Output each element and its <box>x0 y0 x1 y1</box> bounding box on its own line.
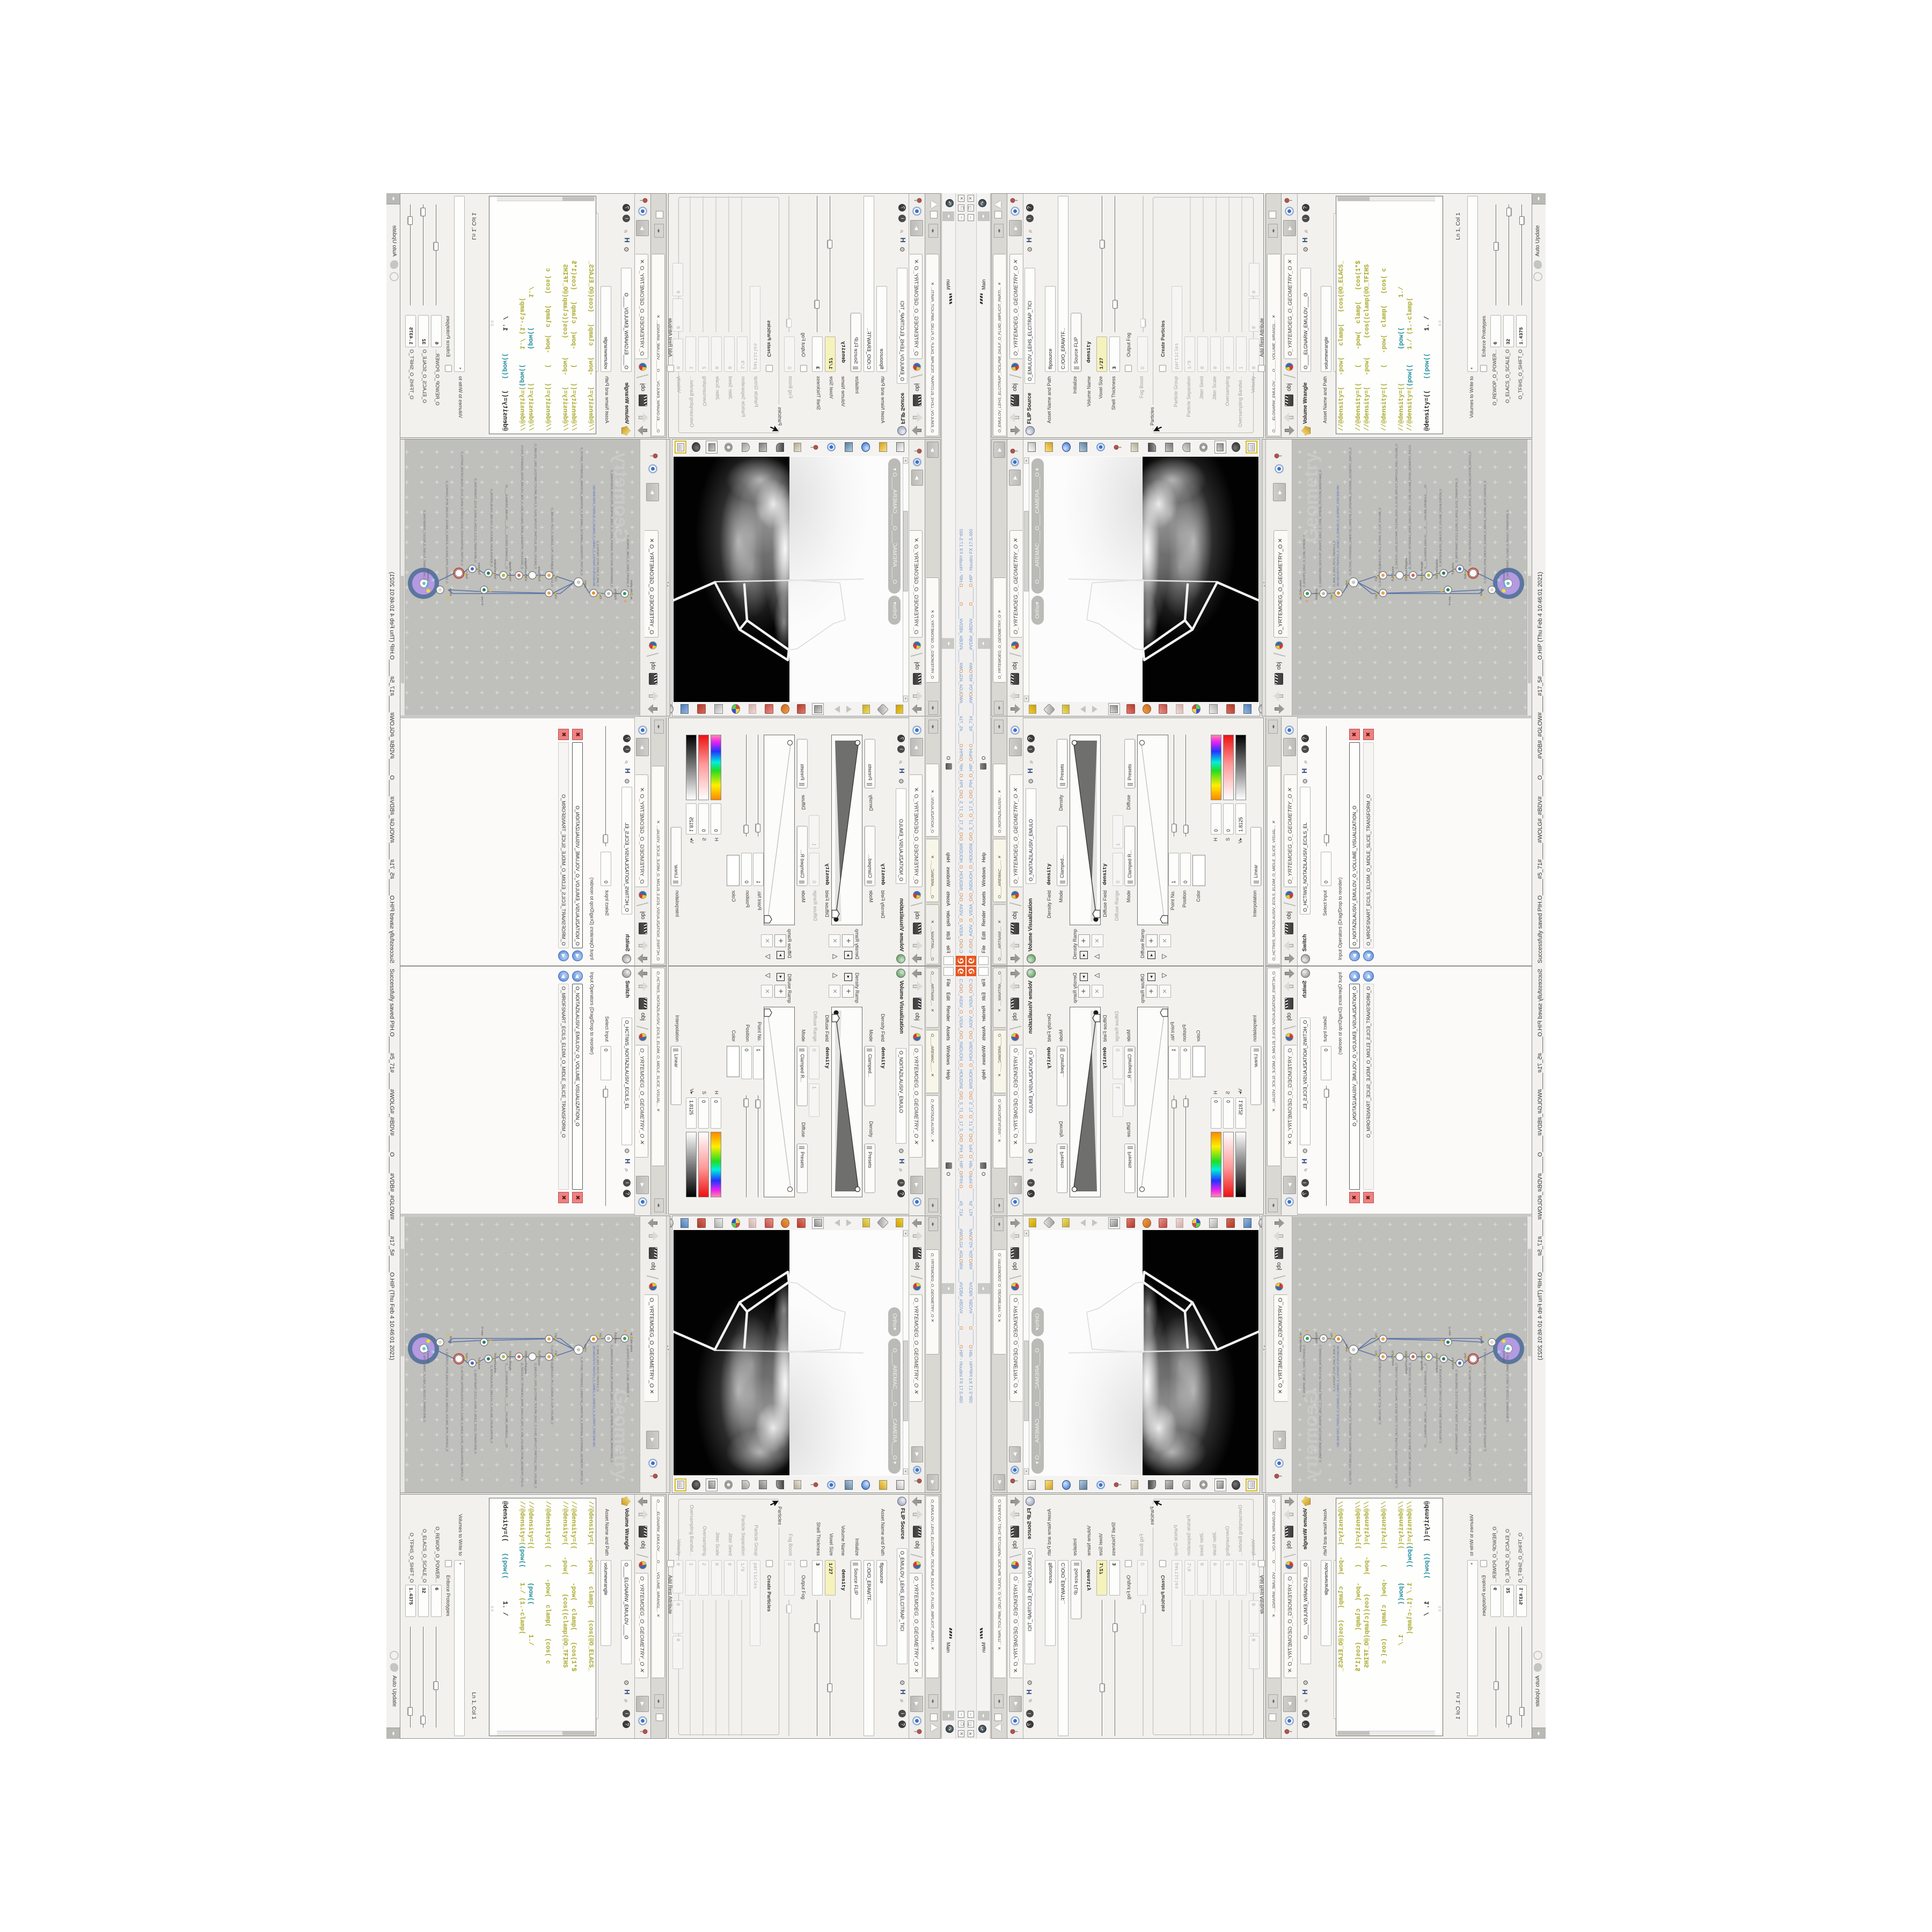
svg-text:Volume: Volume <box>480 1327 484 1336</box>
svg-text:O_MROFSNART_TLUSER_O_RESULT_TR: O_MROFSNART_TLUSER_O_RESULT_TRANSFORM_O <box>1506 510 1510 580</box>
svg-text:O_HCTIWS_NOITAZILAUSIV_ECILS_E: O_HCTIWS_NOITAZILAUSIV_ECILS_ELDIM_O_MID… <box>460 451 463 566</box>
svg-text:Switch: Switch <box>1345 1344 1349 1352</box>
svg-text:PolyWire: PolyWire <box>613 1333 617 1343</box>
svg-text:Volume Wrangle: Volume Wrangle <box>508 1351 511 1371</box>
svg-text:Volume Wrangle: Volume Wrangle <box>1421 561 1424 581</box>
svg-text:O_EMARFERIW_NOGYLOP_EREHPS_EBU: O_EMARFERIW_NOGYLOP_EREHPS_EBUC_O_CUBE_S… <box>610 470 613 587</box>
svg-text:Clip: Clip <box>1375 594 1378 599</box>
svg-text:VolumeVisualiza: VolumeVisualiza <box>1436 1353 1439 1373</box>
svg-text:ae_CubeSphere: ae_CubeSphere <box>1299 580 1302 599</box>
svg-text:VDB from Polygons: VDB from Polygons <box>1405 1351 1408 1374</box>
svg-text:Switch: Switch <box>465 1353 468 1361</box>
svg-text:Volume Wrangle: Volume Wrangle <box>508 561 511 581</box>
svg-text:VolumeVisualiza: VolumeVisualiza <box>1436 559 1439 579</box>
svg-text:O_SNOGILOP_YRTEMOEG_MORF_EMULO: O_SNOGILOP_YRTEMOEG_MORF_EMULOV_BDV_O_VD… <box>520 445 523 569</box>
svg-text:O_EMULOV_LEHS_ELCITRAP_TICILPM: O_EMULOV_LEHS_ELCITRAP_TICILPMI_DIULF_O_… <box>533 444 537 569</box>
svg-text:Geometry: Geometry <box>610 1389 632 1480</box>
svg-text:File: File <box>598 595 602 599</box>
svg-text:O_MROFSNART_TLUSER_O_RESULT_TR: O_MROFSNART_TLUSER_O_RESULT_TRANSFORM_O <box>1506 1352 1510 1422</box>
svg-text:JBO.MD3.PETS.TREPOLS_O_SDNEG_O: JBO.MD3.PETS.TREPOLS_O_SDNEG_O_GENUS3_O_… <box>1337 485 1340 587</box>
svg-text:O_EMARFERIW_NOGYLOP_EREHPS_EBU: O_EMARFERIW_NOGYLOP_EREHPS_EBUC_O_CUBE_S… <box>610 1345 613 1462</box>
svg-text:Clip: Clip <box>554 594 557 599</box>
svg-text:FLIP Source: FLIP Source <box>537 1351 540 1366</box>
svg-text:O_ECAFRUS_HTIW_EMULOV_EGREM_O_: O_ECAFRUS_HTIW_EMULOV_EGREM_O_MERGE_VOLU… <box>1484 1349 1487 1452</box>
svg-text:O_NOITAZILAUSIV_EMULOV_O_VOLUM: O_NOITAZILAUSIV_EMULOV_O_VOLUME_VISUALIZ… <box>1439 1365 1443 1443</box>
svg-text:O_NOITAZILAUSIV_EMULOV_O_VOLUM: O_NOITAZILAUSIV_EMULOV_O_VOLUME_VISUALIZ… <box>489 489 493 567</box>
svg-text:ae_CubeSphere: ae_CubeSphere <box>1299 1333 1302 1352</box>
svg-text:ae_CubeSphere: ae_CubeSphere <box>630 580 633 599</box>
svg-text:Merge: Merge <box>449 588 452 596</box>
svg-text:Clip: Clip <box>554 1351 557 1356</box>
svg-text:Transform: Transform <box>426 569 429 581</box>
svg-text:O_MROFSNART_ECILS_ELDIM_O_MIDL: O_MROFSNART_ECILS_ELDIM_O_MIDLE_SLICE_TR… <box>473 478 477 562</box>
svg-text:O_MROFSNART_ECILS_ELDIM_O_MIDL: O_MROFSNART_ECILS_ELDIM_O_MIDLE_SLICE_TR… <box>1455 1370 1459 1454</box>
svg-text:Volume Wrangle: Volume Wrangle <box>1421 1351 1424 1371</box>
svg-text:Merge: Merge <box>1480 1336 1483 1344</box>
svg-text:Switch: Switch <box>465 571 468 579</box>
svg-text:Clip: Clip <box>554 1333 557 1338</box>
svg-text:O_HCTIWS_NOITAZILAUSIV_ECILS_E: O_HCTIWS_NOITAZILAUSIV_ECILS_ELDIM_O_MID… <box>1469 451 1472 566</box>
svg-text:O_SNOGILOP_YRTEMOEG_MORF_EMULO: O_SNOGILOP_YRTEMOEG_MORF_EMULOV_BDV_O_VD… <box>520 1363 523 1487</box>
svg-text:O_EREHPS_EBUC_O_CUBE_SPHERE_O: O_EREHPS_EBUC_O_CUBE_SPHERE_O <box>626 535 629 587</box>
svg-text:O_HCTIWS_YRTEMOEG_LANRETXE_LAN: O_HCTIWS_YRTEMOEG_LANRETXE_LANRETNI_O_IN… <box>580 448 583 575</box>
svg-text:Transform: Transform <box>477 562 480 575</box>
svg-text:PolyWire: PolyWire <box>1315 589 1319 599</box>
svg-text:Clip: Clip <box>1375 1351 1378 1356</box>
svg-text:O_NAB_O_MD3_PETS_TREPOLS_O: O_NAB_O_MD3_PETS_TREPOLS_O <box>596 540 599 587</box>
svg-text:O_EMARFERIW_NOGYLOP_EREHPS_EBU: O_EMARFERIW_NOGYLOP_EREHPS_EBUC_O_CUBE_S… <box>1319 1345 1322 1462</box>
svg-text:O_SNOGILOP_YRTEMOEG_MORF_EMULO: O_SNOGILOP_YRTEMOEG_MORF_EMULOV_BDV_O_VD… <box>1409 445 1412 569</box>
svg-text:O_MROFSNART_ECILS_ELDIM_O_MIDL: O_MROFSNART_ECILS_ELDIM_O_MIDLE_SLICE_TR… <box>1455 478 1459 562</box>
svg-text:O_NAB_O_MD3_PETS_TREPOLS_O: O_NAB_O_MD3_PETS_TREPOLS_O <box>596 1345 599 1392</box>
svg-text:Volume: Volume <box>1448 1327 1452 1336</box>
svg-text:O_MROFSNART_TLUSER_O_RESULT_TR: O_MROFSNART_TLUSER_O_RESULT_TRANSFORM_O <box>422 1352 426 1422</box>
svg-text:O_EMULOV_LEHS_ELCITRAP_TICILPM: O_EMULOV_LEHS_ELCITRAP_TICILPMI_DIULF_O_… <box>533 1363 537 1488</box>
svg-text:Transform: Transform <box>477 1357 480 1370</box>
svg-text:O____ELGNARW_EMULOV____O____VO: O____ELGNARW_EMULOV____O____VOLUME_WRANG… <box>1424 485 1428 569</box>
svg-text:Transform: Transform <box>1503 1351 1506 1363</box>
svg-text:Geometry: Geometry <box>1300 452 1322 543</box>
svg-text:O_HCTIWS_NOITAZILAUSIV_ECILS_E: O_HCTIWS_NOITAZILAUSIV_ECILS_ELDIM_O_MID… <box>1469 1366 1472 1481</box>
svg-text:O____ELGNARW_EMULOV____O____VO: O____ELGNARW_EMULOV____O____VOLUME_WRANG… <box>504 1363 508 1447</box>
svg-text:PolyWire: PolyWire <box>613 589 617 599</box>
svg-text:O_EMULOV_PILC_EGREM_O_CLIP_VOL: O_EMULOV_PILC_EGREM_O_CLIP_VOLUME_O <box>1379 1363 1382 1424</box>
svg-text:O_HCTIWS_YRTEMOEG_LANRETXE_LAN: O_HCTIWS_YRTEMOEG_LANRETXE_LANRETNI_O_IN… <box>580 1357 583 1484</box>
svg-text:O_HCTIWS_NOITAZILAUSIV_ECILS_E: O_HCTIWS_NOITAZILAUSIV_ECILS_ELDIM_O_MID… <box>460 1366 463 1481</box>
svg-text:Transform: Transform <box>1452 562 1455 575</box>
svg-text:O____ELGNARW_EMULOV____O____VO: O____ELGNARW_EMULOV____O____VOLUME_WRANG… <box>1424 1363 1428 1447</box>
svg-text:O_EMULOV_LEHS_ELCITRAP_TICILPM: O_EMULOV_LEHS_ELCITRAP_TICILPMI_DIULF_O_… <box>1395 1363 1399 1488</box>
svg-text:O_EREHPS_EBUC_O_CUBE_SPHERE_O: O_EREHPS_EBUC_O_CUBE_SPHERE_O <box>1303 1345 1306 1397</box>
svg-text:Merge: Merge <box>449 1336 452 1344</box>
svg-text:FLIP Source: FLIP Source <box>1392 566 1395 581</box>
svg-text:O_MROFSNART_TLUSER_O_RESULT_TR: O_MROFSNART_TLUSER_O_RESULT_TRANSFORM_O <box>422 510 426 580</box>
svg-text:VolumeVisualiza: VolumeVisualiza <box>493 1353 496 1373</box>
svg-text:O_HCTIWS_YRTEMOEG_LANRETXE_LAN: O_HCTIWS_YRTEMOEG_LANRETXE_LANRETNI_O_IN… <box>1349 448 1352 575</box>
svg-text:O_MROFSNART_ECILS_ELDIM_O_MIDL: O_MROFSNART_ECILS_ELDIM_O_MIDLE_SLICE_TR… <box>473 1370 477 1454</box>
svg-text:VolumeVisualiza: VolumeVisualiza <box>493 559 496 579</box>
svg-text:File: File <box>1330 1333 1334 1337</box>
svg-text:O_SNOGILOP_YRTEMOEG_MORF_EMULO: O_SNOGILOP_YRTEMOEG_MORF_EMULOV_BDV_O_VD… <box>1409 1363 1412 1487</box>
svg-text:O_ECAFRUS_HTIW_EMULOV_EGREM_O_: O_ECAFRUS_HTIW_EMULOV_EGREM_O_MERGE_VOLU… <box>445 480 448 583</box>
svg-text:Switch: Switch <box>1464 571 1467 579</box>
svg-text:Geometry: Geometry <box>1300 1389 1322 1480</box>
svg-text:VDB from Polygons: VDB from Polygons <box>524 558 527 581</box>
svg-text:Geometry: Geometry <box>610 452 632 543</box>
svg-text:O_HCTIWS_YRTEMOEG_LANRETXE_LAN: O_HCTIWS_YRTEMOEG_LANRETXE_LANRETNI_O_IN… <box>1349 1357 1352 1484</box>
svg-text:Transform: Transform <box>1452 1357 1455 1370</box>
svg-text:FLIP Source: FLIP Source <box>537 566 540 581</box>
svg-text:O_NAB_O_MD3_PETS_TREPOLS_O: O_NAB_O_MD3_PETS_TREPOLS_O <box>1333 540 1336 587</box>
svg-text:O_EMARFERIW_NOGYLOP_EREHPS_EBU: O_EMARFERIW_NOGYLOP_EREHPS_EBUC_O_CUBE_S… <box>1319 470 1322 587</box>
svg-text:Clip: Clip <box>1375 576 1378 581</box>
svg-text:O_NAB_O_MD3_PETS_TREPOLS_O: O_NAB_O_MD3_PETS_TREPOLS_O <box>1333 1345 1336 1392</box>
svg-text:VDB from Polygons: VDB from Polygons <box>1405 558 1408 581</box>
svg-text:Volume: Volume <box>480 596 484 605</box>
svg-text:File: File <box>598 1333 602 1337</box>
svg-text:O_EMULOV_PILC_EGREM_O_CLIP_VOL: O_EMULOV_PILC_EGREM_O_CLIP_VOLUME_O <box>1379 508 1382 569</box>
svg-text:JBO.MD3.PETS.TREPOLS_O_SDNEG_O: JBO.MD3.PETS.TREPOLS_O_SDNEG_O_GENUS3_O_… <box>1337 1345 1340 1447</box>
svg-text:JBO.MD3.PETS.TREPOLS_O_SDNEG_O: JBO.MD3.PETS.TREPOLS_O_SDNEG_O_GENUS3_O_… <box>592 485 595 587</box>
svg-text:Switch: Switch <box>1345 580 1349 588</box>
svg-text:O_ECAFRUS_HTIW_EMULOV_EGREM_O_: O_ECAFRUS_HTIW_EMULOV_EGREM_O_MERGE_VOLU… <box>445 1349 448 1452</box>
svg-text:PolyWire: PolyWire <box>1315 1333 1319 1343</box>
svg-text:Switch: Switch <box>583 1344 587 1352</box>
svg-text:Clip: Clip <box>554 576 557 581</box>
svg-text:Transform: Transform <box>426 1351 429 1363</box>
svg-text:O_EMULOV_PILC_EGREM_O_CLIP_VOL: O_EMULOV_PILC_EGREM_O_CLIP_VOLUME_O <box>550 1363 553 1424</box>
svg-text:Clip: Clip <box>1375 1333 1378 1338</box>
svg-text:Volume: Volume <box>1448 596 1452 605</box>
svg-text:FLIP Source: FLIP Source <box>1392 1351 1395 1366</box>
svg-text:Transform: Transform <box>1503 569 1506 581</box>
svg-text:O_NOITAZILAUSIV_EMULOV_O_VOLUM: O_NOITAZILAUSIV_EMULOV_O_VOLUME_VISUALIZ… <box>1439 489 1443 567</box>
svg-text:O_EREHPS_EBUC_O_CUBE_SPHERE_O: O_EREHPS_EBUC_O_CUBE_SPHERE_O <box>1303 535 1306 587</box>
svg-text:File: File <box>1330 595 1334 599</box>
svg-text:O_ECAFRUS_HTIW_EMULOV_EGREM_O_: O_ECAFRUS_HTIW_EMULOV_EGREM_O_MERGE_VOLU… <box>1484 480 1487 583</box>
svg-text:O_EMULOV_PILC_EGREM_O_CLIP_VOL: O_EMULOV_PILC_EGREM_O_CLIP_VOLUME_O <box>550 508 553 569</box>
svg-text:O_EREHPS_EBUC_O_CUBE_SPHERE_O: O_EREHPS_EBUC_O_CUBE_SPHERE_O <box>626 1345 629 1397</box>
svg-text:Switch: Switch <box>583 580 587 588</box>
svg-text:O____ELGNARW_EMULOV____O____VO: O____ELGNARW_EMULOV____O____VOLUME_WRANG… <box>504 485 508 569</box>
svg-text:VDB from Polygons: VDB from Polygons <box>524 1351 527 1374</box>
svg-text:Switch: Switch <box>1464 1353 1467 1361</box>
svg-text:O_NOITAZILAUSIV_EMULOV_O_VOLUM: O_NOITAZILAUSIV_EMULOV_O_VOLUME_VISUALIZ… <box>489 1365 493 1443</box>
svg-text:ae_CubeSphere: ae_CubeSphere <box>630 1333 633 1352</box>
svg-text:JBO.MD3.PETS.TREPOLS_O_SDNEG_O: JBO.MD3.PETS.TREPOLS_O_SDNEG_O_GENUS3_O_… <box>592 1345 595 1447</box>
svg-text:Merge: Merge <box>1480 588 1483 596</box>
svg-text:O_EMULOV_LEHS_ELCITRAP_TICILPM: O_EMULOV_LEHS_ELCITRAP_TICILPMI_DIULF_O_… <box>1395 444 1399 569</box>
